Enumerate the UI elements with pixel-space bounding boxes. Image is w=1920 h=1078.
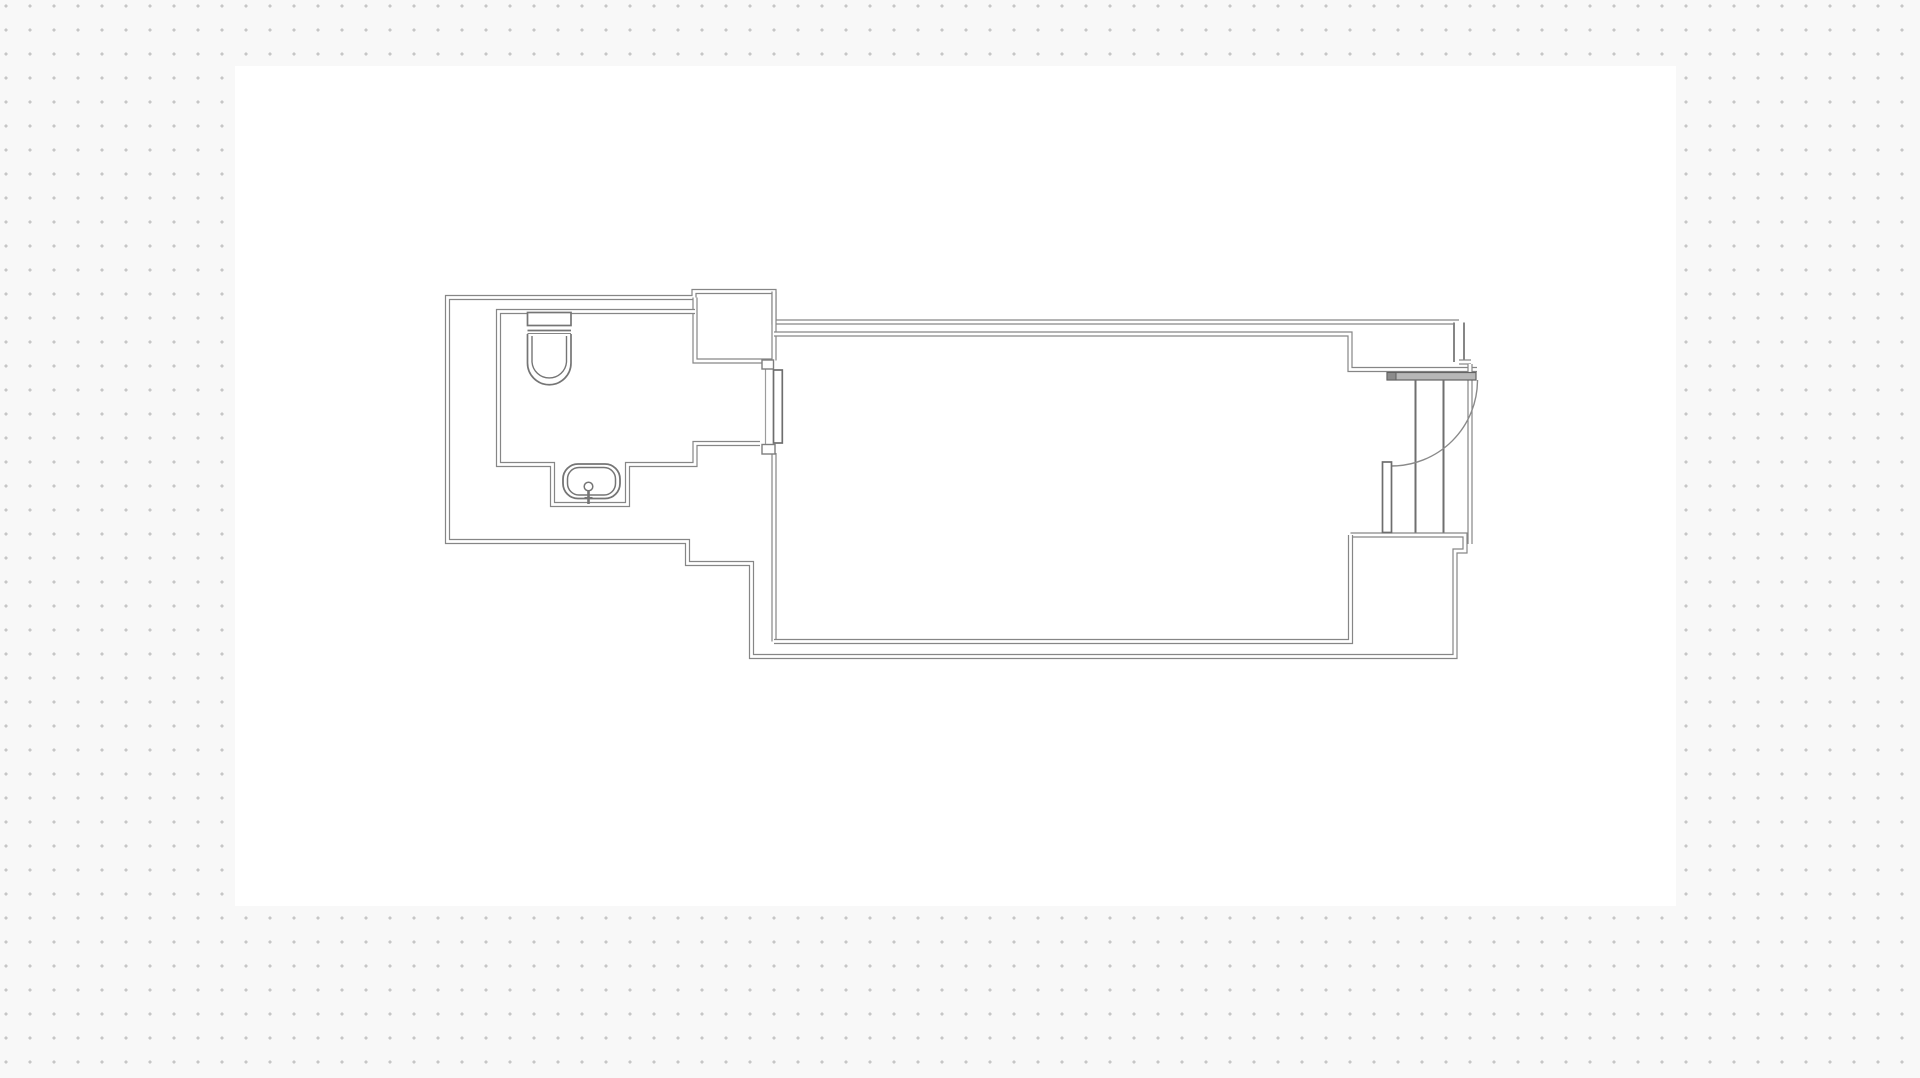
sink-basin-outer xyxy=(563,464,620,499)
toilet-tank xyxy=(528,313,572,326)
entry-door-threshold-cap xyxy=(1387,373,1396,381)
bathroom-door-jamb-cap-2 xyxy=(762,445,775,455)
entry-door-threshold xyxy=(1387,373,1476,381)
sink[interactable] xyxy=(563,464,620,504)
toilet[interactable] xyxy=(528,313,572,385)
bathroom-door-jamb-cap-1 xyxy=(762,360,774,369)
bathroom-door-leaf[interactable] xyxy=(774,370,783,443)
toilet-bowl-outer xyxy=(528,334,572,385)
entry-door-leaf[interactable] xyxy=(1383,462,1392,533)
design-canvas[interactable] xyxy=(0,0,1920,1078)
floor-plan-drawing[interactable] xyxy=(0,0,1920,1078)
artboard[interactable] xyxy=(235,66,1676,906)
